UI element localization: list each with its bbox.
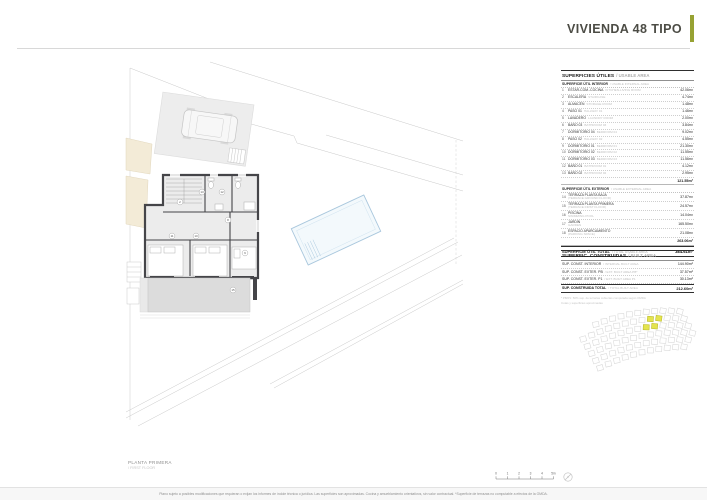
minimap-unit — [635, 326, 641, 331]
row-label-es: SUP. CONST. EXTER. P1 — [562, 277, 602, 281]
minimap-unit — [668, 337, 675, 343]
row-label: TERRAZA PLANTA PRIMERA(TERRACE FIRST FLO… — [568, 202, 614, 210]
interior-subheader-en: / USABLE INTERNAL AREA — [610, 82, 649, 86]
svg-text:13: 13 — [200, 190, 204, 194]
row-value: 21.08m² — [680, 231, 693, 235]
minimap-unit — [626, 312, 632, 317]
minimap-unit — [660, 308, 667, 314]
row-label-en: STORAGE ROOM — [586, 102, 612, 106]
minimap-unit — [651, 308, 658, 314]
page-title: VIVIENDA 48 TIPO — [567, 22, 682, 36]
exterior-subheader: SUPERFICIE ÚTIL EXTERIOR / USABLE EXTERN… — [561, 185, 694, 192]
minimap-unit — [609, 316, 615, 322]
row-label-es: DORMITORIO 03 — [568, 157, 595, 161]
row-label-es: ALMACÉN — [568, 102, 584, 106]
minimap-highlighted-unit — [651, 323, 657, 329]
minimap-unit — [660, 338, 666, 344]
row-value: 4.74m² — [682, 95, 693, 99]
row-label-es: ESCALERA — [568, 95, 586, 99]
minimap-unit — [588, 350, 595, 357]
table-row: 12BAÑO 01BATHROOM 014.12m² — [561, 164, 694, 171]
row-label-en: (TERRACE GROUND FLOOR) — [568, 197, 611, 201]
row-label-en: GARDEN — [568, 224, 581, 228]
minimap-unit — [680, 315, 687, 322]
table-row: SUP. CONST. EXTER. PB/ EXT. BUILT AREA P… — [561, 269, 694, 277]
row-value: 144.90m² — [678, 262, 693, 266]
built-table-header: SUPERFIC. CONSTRUIDAS / BUILT AREA — [561, 250, 694, 261]
pool — [291, 195, 380, 265]
table-row: SUP. CONSTRUIDA TOTAL/ TOTAL BUILT AREA2… — [561, 284, 694, 293]
minimap-unit — [601, 353, 608, 359]
terrace — [140, 278, 250, 318]
minimap-unit — [639, 350, 645, 356]
row-value: 165.50m² — [678, 222, 693, 226]
exterior-rows: 14TERRAZA PLANTA BAJA(TERRACE GROUND FLO… — [561, 193, 694, 239]
table-row: 5LAVADEROLAUNDRY ROOM2.00m² — [561, 116, 694, 123]
minimap-unit — [601, 336, 608, 342]
table-row: 18ESPACIO APARCAMIENTO(PARKING SPACE)21.… — [561, 229, 694, 238]
interior-subheader: SUPERFICIE ÚTIL INTERIOR / USABLE INTERN… — [561, 81, 694, 88]
minimap-unit — [643, 309, 649, 315]
footer-bar: Plano sujeto a posibles modificaciones q… — [0, 487, 707, 500]
row-value: 2.00m² — [682, 116, 693, 120]
built-area-table: SUPERFIC. CONSTRUIDAS / BUILT AREA SUP. … — [561, 250, 694, 305]
row-value: 21.30m² — [680, 144, 693, 148]
row-value: 4.12m² — [682, 164, 693, 168]
table-row: 11DORMITORIO 03BEDROOM 0311.56m² — [561, 157, 694, 164]
row-value: 11.56m² — [680, 157, 693, 161]
minimap-unit — [652, 339, 658, 344]
table-row: 10DORMITORIO 02BEDROOM 0211.55m² — [561, 150, 694, 157]
table-row: 8PASO 02HALLWAY 024.55m² — [561, 137, 694, 144]
svg-text:10: 10 — [194, 234, 198, 238]
table-row: 9DORMITORIO 01BEDROOM 0121.30m² — [561, 144, 694, 151]
row-label-es: BAÑO 01 — [568, 164, 582, 168]
minimap-unit — [596, 364, 603, 371]
scale-label: 5m — [551, 472, 556, 476]
room-number-marker: 12 — [219, 189, 225, 195]
room-number-marker: 10 — [193, 233, 199, 239]
minimap-unit — [676, 337, 683, 343]
room-number-marker: 11 — [169, 233, 175, 239]
table-row: 1ESTAR-COM.-COCINAKITCHEN-LIVING ROOM42.… — [561, 88, 694, 95]
minimap-unit — [614, 323, 620, 329]
row-value: 30.13m² — [680, 277, 693, 281]
minimap-unit — [580, 336, 587, 343]
minimap-unit — [643, 341, 649, 346]
minimap-unit — [622, 337, 628, 343]
built-title-es: SUPERFIC. CONSTRUIDAS — [562, 254, 626, 259]
row-label-es: DORMITORIO 01 — [568, 144, 595, 148]
minimap-unit — [626, 328, 632, 334]
minimap-unit — [592, 357, 599, 364]
row-value: 9.02m² — [682, 130, 693, 134]
minimap-unit — [631, 319, 637, 324]
scale-label: 4 — [541, 472, 543, 476]
exterior-subtotal-row: 263.06m² — [561, 238, 694, 245]
minimap-unit — [685, 323, 692, 330]
plan-caption: PLANTA PRIMERA / FIRST FLOOR — [128, 460, 172, 471]
minimap-highlighted-unit — [643, 325, 649, 330]
row-label-en: BEDROOM 02 — [597, 150, 617, 154]
minimap-unit — [596, 346, 603, 352]
row-label-en: (PARKING SPACE) — [568, 233, 610, 237]
plan-caption-en: / FIRST FLOOR — [128, 466, 172, 471]
usable-table-header: SUPERFICIES ÚTILES / USABLE AREA — [561, 70, 694, 81]
svg-text:11: 11 — [170, 234, 173, 238]
table-row: 7DORMITORIO 04BEDROOM 049.02m² — [561, 130, 694, 137]
floor-plan-drawing: 1312281110915 — [118, 52, 463, 432]
footnote-2: Cotas y superficies aproximadas — [561, 301, 694, 305]
row-value: 11.55m² — [680, 150, 693, 154]
minimap-unit — [613, 357, 620, 363]
row-value: 3.84m² — [682, 123, 693, 127]
scale-label: 1 — [507, 472, 509, 476]
row-label-en: HALLWAY 01 — [584, 109, 602, 113]
usable-area-table: SUPERFICIES ÚTILES / USABLE AREA SUPERFI… — [561, 70, 694, 257]
row-label-en: (TERRACE FIRST FLOOR) — [568, 206, 614, 210]
footnote-1: * PB/P1: 50% sup. de terrazas cubiertas … — [561, 296, 694, 300]
row-label-en: / EXT. BUILT AREA P1 — [604, 277, 635, 281]
interior-subtotal-value: 121.55m² — [677, 179, 693, 183]
row-value: 14.04m² — [680, 213, 693, 217]
minimap-unit — [656, 331, 662, 337]
minimap-unit — [584, 343, 591, 350]
minimap-unit — [635, 342, 641, 348]
table-row: 13BAÑO 02BATHROOM 022.95m² — [561, 171, 694, 178]
row-label-es: PASO 02 — [568, 137, 582, 141]
minimap-unit — [618, 347, 625, 353]
minimap-unit — [685, 337, 692, 343]
site-plan-minimap — [564, 306, 704, 386]
svg-text:15: 15 — [231, 288, 235, 292]
row-value: 37.87m² — [680, 195, 693, 199]
scale-bar: 012345m — [492, 468, 582, 484]
minimap-unit — [605, 361, 612, 367]
row-label-es: BAÑO 03 — [568, 123, 582, 127]
interior-subheader-es: SUPERFICIE ÚTIL INTERIOR — [562, 82, 608, 86]
plan-sheet: VIVIENDA 48 TIPO — [0, 0, 707, 500]
row-label-en: STAIRCASE — [588, 95, 605, 99]
minimap-unit — [605, 343, 612, 349]
row-label-es: DORMITORIO 02 — [568, 150, 595, 154]
row-value: 37.57m² — [680, 270, 693, 274]
table-row: 6BAÑO 03BATHROOM 033.84m² — [561, 123, 694, 130]
minimap-unit — [672, 315, 679, 321]
minimap-unit — [639, 333, 645, 338]
row-value: 212.60m² — [676, 286, 693, 291]
row-label-en: BATHROOM 02 — [584, 171, 606, 175]
minimap-unit — [689, 330, 696, 337]
drainage-grate-icon — [228, 148, 246, 164]
exterior-subheader-en: / USABLE EXTERNAL AREA — [611, 187, 651, 191]
table-row: 2ESCALERASTAIRCASE4.74m² — [561, 95, 694, 102]
minimap-unit — [647, 332, 653, 337]
usable-title-en: / USABLE AREA — [616, 73, 649, 78]
minimap-unit — [609, 350, 616, 356]
row-label-en: LAUNDRY ROOM — [588, 116, 613, 120]
row-value: 24.57m² — [680, 204, 693, 208]
minimap-unit — [609, 333, 616, 339]
minimap-unit — [676, 308, 683, 315]
minimap-unit — [592, 321, 599, 327]
row-value: 4.55m² — [682, 137, 693, 141]
room-number-marker: 8 — [225, 217, 231, 223]
minimap-unit — [639, 317, 645, 322]
table-row: 15TERRAZA PLANTA PRIMERA(TERRACE FIRST F… — [561, 202, 694, 211]
minimap-unit — [618, 314, 624, 320]
minimap-unit — [601, 318, 608, 324]
row-label-en: HALLWAY 02 — [584, 137, 602, 141]
scale-label: 2 — [518, 472, 520, 476]
footer-disclaimer: Plano sujeto a posibles modificaciones q… — [159, 492, 547, 496]
row-label: JARDÍNGARDEN — [568, 220, 581, 228]
header-divider — [17, 48, 690, 49]
minimap-unit — [647, 348, 653, 353]
minimap-unit — [622, 321, 628, 327]
row-label-es: SUP. CONST. EXTER. PB — [562, 270, 603, 274]
table-row: 3ALMACÉNSTORAGE ROOM1.48m² — [561, 102, 694, 109]
minimap-unit — [626, 345, 632, 351]
minimap-unit — [664, 315, 671, 321]
minimap-unit — [597, 328, 604, 334]
driveway — [154, 92, 254, 166]
room-number-marker: 9 — [242, 250, 248, 256]
interior-rows: 1ESTAR-COM.-COCINAKITCHEN-LIVING ROOM42.… — [561, 88, 694, 178]
minimap-unit — [664, 345, 670, 351]
north-indicator-icon — [564, 473, 572, 481]
room-number-marker: 13 — [199, 189, 205, 195]
room-number-marker: 2 — [177, 199, 183, 205]
table-row: 17JARDÍNGARDEN165.50m² — [561, 220, 694, 229]
minimap-unit — [592, 339, 599, 345]
minimap-unit — [668, 308, 675, 314]
row-label-en: BATHROOM 01 — [584, 164, 606, 168]
minimap-unit — [588, 332, 595, 338]
interior-subtotal-row: 121.55m² — [561, 178, 694, 185]
minimap-unit — [630, 335, 636, 341]
row-label-en: / INTERNAL BUILT AREA — [603, 262, 638, 266]
minimap-unit — [672, 329, 679, 335]
row-label: TERRAZA PLANTA BAJA(TERRACE GROUND FLOOR… — [568, 193, 611, 201]
minimap-unit — [635, 310, 641, 315]
row-label-en: BEDROOM 03 — [597, 157, 617, 161]
minimap-highlighted-unit — [655, 315, 662, 321]
row-label-en: BEDROOM 04 — [597, 130, 617, 134]
minimap-unit — [676, 322, 683, 328]
minimap-unit — [664, 330, 671, 336]
row-label-en: / TOTAL BUILT AREA — [608, 286, 638, 290]
minimap-unit — [622, 354, 629, 360]
built-title-en: / BUILT AREA — [628, 253, 656, 258]
table-row: SUP. CONST. EXTER. P1/ EXT. BUILT AREA P… — [561, 276, 694, 284]
table-row: 16PISCINASWIMMING POOL14.04m² — [561, 211, 694, 220]
table-row: SUP. CONST. INTERIOR/ INTERNAL BUILT ARE… — [561, 261, 694, 269]
row-label-es: SUP. CONST. INTERIOR — [562, 262, 601, 266]
minimap-unit — [613, 340, 620, 346]
row-label-en: KITCHEN-LIVING ROOM — [605, 88, 640, 92]
table-row: 4PASO 01HALLWAY 011.46m² — [561, 109, 694, 116]
row-label-en: BATHROOM 03 — [584, 123, 606, 127]
minimap-unit — [681, 329, 688, 335]
scale-label: 0 — [495, 472, 497, 476]
row-value: 2.95m² — [682, 171, 693, 175]
row-label-es: DORMITORIO 04 — [568, 130, 595, 134]
row-label-es: ESTAR-COM.-COCINA — [568, 88, 603, 92]
exterior-subtotal-value: 263.06m² — [677, 239, 693, 243]
row-label-en: / EXT. BUILT AREA PB* — [605, 270, 638, 274]
minimap-highlighted-unit — [647, 316, 653, 322]
minimap-unit — [605, 325, 612, 331]
row-label-es: PASO 01 — [568, 109, 582, 113]
row-label-es: SUP. CONSTRUIDA TOTAL — [562, 286, 606, 290]
row-value: 42.06m² — [680, 88, 693, 92]
minimap-unit — [656, 346, 662, 351]
minimap-unit — [681, 344, 688, 350]
room-number-marker: 15 — [230, 287, 236, 293]
row-label-en: SWIMMING POOL — [568, 215, 594, 219]
scale-label: 3 — [530, 472, 532, 476]
row-label: PISCINASWIMMING POOL — [568, 211, 594, 219]
usable-title-es: SUPERFICIES ÚTILES — [562, 74, 614, 79]
accent-bar — [690, 15, 695, 42]
row-label: ESPACIO APARCAMIENTO(PARKING SPACE) — [568, 229, 610, 237]
built-rows: SUP. CONST. INTERIOR/ INTERNAL BUILT ARE… — [561, 261, 694, 293]
minimap-unit — [660, 323, 667, 329]
minimap-unit — [630, 352, 636, 358]
row-value: 1.46m² — [682, 109, 693, 113]
exterior-subheader-es: SUPERFICIE ÚTIL EXTERIOR — [562, 187, 609, 191]
exterior-stairs-icon — [127, 262, 141, 304]
row-label-es: LAVADERO — [568, 116, 586, 120]
row-value: 1.48m² — [682, 102, 693, 106]
minimap-unit — [672, 344, 679, 350]
minimap-unit — [668, 322, 675, 328]
svg-text:12: 12 — [220, 190, 224, 194]
minimap-unit — [618, 330, 624, 336]
row-label-en: BEDROOM 01 — [597, 144, 617, 148]
row-label-es: BAÑO 02 — [568, 171, 582, 175]
table-row: 14TERRAZA PLANTA BAJA(TERRACE GROUND FLO… — [561, 193, 694, 202]
